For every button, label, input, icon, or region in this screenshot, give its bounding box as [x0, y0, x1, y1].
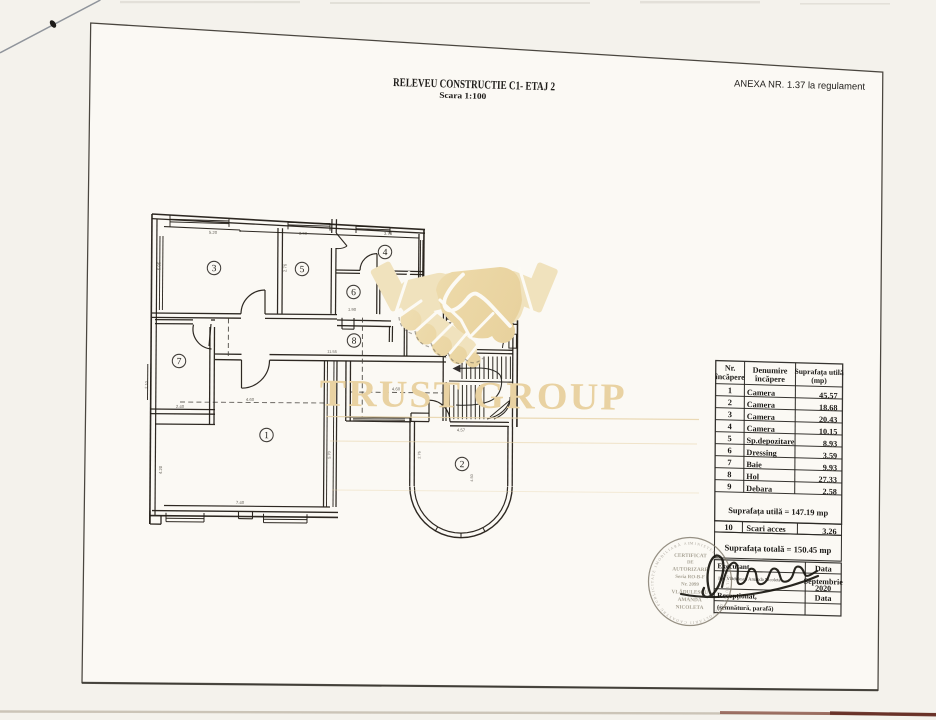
svg-text:Camera: Camera [747, 424, 775, 434]
svg-text:Camera: Camera [747, 400, 775, 410]
svg-text:Sp.depozitare: Sp.depozitare [747, 436, 795, 446]
svg-text:2: 2 [460, 460, 465, 470]
svg-text:4.57: 4.57 [457, 427, 466, 432]
svg-text:2: 2 [728, 398, 732, 407]
svg-text:4.20: 4.20 [158, 465, 163, 474]
svg-text:6: 6 [351, 288, 356, 298]
svg-text:9.93: 9.93 [823, 463, 837, 472]
svg-text:CERTIFICAT: CERTIFICAT [674, 553, 707, 560]
svg-text:Nr.: Nr. [725, 363, 736, 372]
svg-text:2.76: 2.76 [417, 451, 421, 458]
svg-text:8: 8 [352, 337, 357, 347]
svg-text:Dressing: Dressing [746, 448, 777, 458]
svg-text:7: 7 [727, 458, 731, 467]
svg-text:20.43: 20.43 [819, 415, 837, 424]
svg-text:3.73: 3.73 [384, 231, 393, 236]
svg-text:2020: 2020 [815, 584, 831, 593]
svg-text:10.15: 10.15 [819, 427, 837, 436]
svg-text:11.55: 11.55 [327, 349, 338, 354]
svg-text:3: 3 [212, 264, 217, 274]
svg-text:1: 1 [728, 386, 732, 395]
svg-text:2.58: 2.58 [823, 487, 837, 496]
svg-text:7: 7 [177, 357, 182, 367]
svg-text:8: 8 [727, 470, 731, 479]
svg-text:Data: Data [815, 564, 832, 573]
svg-text:4: 4 [383, 248, 388, 258]
svg-text:27.33: 27.33 [819, 475, 837, 484]
svg-text:(mp): (mp) [811, 376, 827, 385]
svg-text:2.40: 2.40 [176, 404, 185, 409]
svg-text:5: 5 [728, 434, 732, 443]
svg-text:DE: DE [687, 560, 694, 565]
svg-text:încăpere: încăpere [714, 372, 745, 382]
svg-text:Camera: Camera [747, 412, 775, 422]
svg-text:3.59: 3.59 [823, 451, 837, 460]
svg-text:1.90: 1.90 [348, 307, 357, 312]
svg-text:Scara 1:100: Scara 1:100 [439, 91, 486, 101]
svg-text:Data: Data [815, 594, 832, 603]
svg-text:TRUST GROUP: TRUST GROUP [319, 373, 627, 419]
svg-text:Hol: Hol [746, 472, 760, 481]
svg-text:Nr. 2099: Nr. 2099 [681, 582, 699, 587]
svg-text:10: 10 [724, 523, 732, 532]
svg-text:3.90: 3.90 [299, 231, 308, 236]
svg-text:45.57: 45.57 [819, 391, 837, 400]
svg-text:5.70: 5.70 [327, 451, 331, 458]
svg-text:7.40: 7.40 [236, 500, 245, 505]
svg-text:5: 5 [300, 265, 305, 275]
svg-text:8.93: 8.93 [823, 439, 837, 448]
svg-text:6: 6 [727, 446, 731, 455]
svg-text:Seria RO-B-F: Seria RO-B-F [675, 575, 705, 581]
svg-text:Baie: Baie [746, 460, 762, 469]
svg-text:4.50: 4.50 [470, 474, 474, 481]
svg-text:1: 1 [264, 431, 269, 441]
svg-text:încăpere: încăpere [754, 374, 785, 384]
svg-text:18.68: 18.68 [819, 403, 837, 412]
svg-text:3.26: 3.26 [822, 527, 836, 536]
svg-text:5.20: 5.20 [209, 230, 218, 235]
svg-text:AUTORIZARE: AUTORIZARE [672, 566, 708, 573]
svg-text:Camera: Camera [747, 388, 775, 398]
svg-text:AMANDA: AMANDA [678, 597, 702, 603]
svg-text:Debara: Debara [746, 484, 772, 494]
svg-text:5.05: 5.05 [157, 261, 162, 270]
svg-text:2.76: 2.76 [282, 263, 287, 272]
svg-text:3: 3 [728, 410, 732, 419]
svg-text:Scari acces: Scari acces [746, 524, 786, 534]
svg-text:9: 9 [727, 482, 731, 491]
svg-text:NICOLETA: NICOLETA [676, 605, 704, 611]
svg-text:4.60: 4.60 [246, 397, 255, 402]
